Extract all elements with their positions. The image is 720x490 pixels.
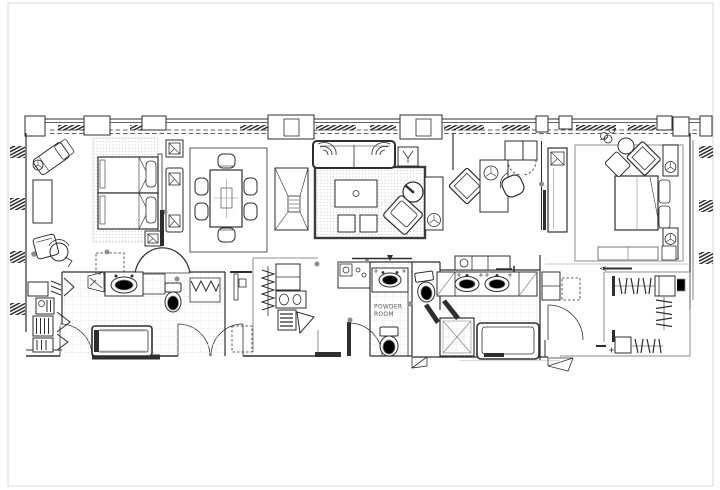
living-console	[425, 177, 443, 230]
bath-cabinet	[542, 272, 560, 300]
hanger-rod-north	[612, 276, 655, 296]
shower	[440, 318, 474, 356]
towel-stack-2	[33, 316, 53, 352]
cabinet	[28, 282, 48, 296]
bedroom2-chaise	[604, 135, 661, 177]
bathtub-west	[92, 326, 152, 356]
pillow	[659, 206, 670, 228]
corner-armchair	[31, 234, 72, 267]
open-door-wedge	[297, 312, 314, 333]
floor-plan-screenshot: POWDER ROOM	[0, 0, 720, 490]
bedroom-tv-console	[163, 168, 184, 232]
bedroom2-tv-console	[548, 148, 567, 232]
dashed-outline	[232, 326, 252, 352]
wall-segment	[543, 190, 546, 230]
nightstand-bottom	[145, 231, 161, 246]
living-area	[313, 133, 453, 238]
powder-room: POWDER ROOM	[370, 262, 413, 356]
twin-bed-1	[98, 157, 158, 193]
left-exterior-wall	[10, 133, 26, 332]
king-bed	[615, 176, 670, 230]
twin-bed-2	[98, 193, 158, 229]
toilet-powder	[380, 327, 398, 356]
ironing-board	[234, 274, 246, 300]
study-area	[449, 141, 546, 230]
dressing-door	[545, 305, 583, 357]
floor-dot	[315, 262, 320, 267]
sofa-side-table	[398, 147, 418, 166]
dressing-closet	[596, 267, 690, 357]
overhead-cabinet	[455, 256, 510, 270]
bathtub-east	[477, 323, 539, 359]
pillow	[146, 161, 156, 187]
powder-room-label-2: ROOM	[374, 311, 394, 318]
curved-vestibule-wall	[135, 248, 190, 273]
closet-shelf-box	[655, 276, 685, 296]
double-vanity	[437, 272, 537, 296]
study-closet	[505, 141, 537, 175]
east-bathroom	[437, 255, 580, 360]
plus-mark	[609, 348, 614, 353]
coffee-table	[335, 180, 377, 207]
top-window-wall	[25, 115, 712, 140]
pillow	[146, 197, 156, 223]
nightstand-top	[166, 140, 183, 157]
dining-area	[190, 148, 267, 252]
west-bedroom	[31, 138, 183, 274]
vanity-sink	[105, 272, 143, 296]
powder-vanity	[372, 268, 408, 292]
hanger-rod-south	[612, 330, 663, 353]
east-bedroom	[548, 135, 683, 261]
floor-dot	[175, 277, 180, 282]
wall-segment	[160, 210, 164, 246]
floor-plan-drawing: POWDER ROOM	[0, 0, 720, 490]
minibar-shelves	[278, 310, 296, 330]
towel-stack-1	[36, 298, 54, 314]
west-bathroom	[63, 272, 224, 356]
wc-door-leaf	[424, 304, 440, 325]
foot-of-bed-bench	[598, 246, 676, 260]
floor-dot	[105, 250, 110, 255]
dining-table	[210, 170, 242, 227]
ottoman-1	[338, 215, 355, 232]
media-cabinet	[275, 168, 308, 230]
wc-room	[412, 262, 440, 324]
entry-threshold	[315, 352, 341, 357]
sofa	[313, 141, 395, 168]
right-exterior-wall	[690, 133, 713, 310]
ottoman-2	[360, 215, 377, 232]
door-knob-dot	[539, 182, 544, 187]
luggage-rack-dashed	[562, 278, 580, 300]
door-knob-dot	[408, 302, 413, 307]
powder-room-label: POWDER	[374, 304, 402, 311]
entry-closet	[230, 262, 320, 353]
closet-cabinets	[276, 264, 306, 308]
hanger-rod-vertical	[262, 266, 274, 316]
nightstand-north	[663, 145, 678, 176]
towel-rack	[190, 278, 220, 302]
door-stop-mark-1	[412, 357, 427, 368]
page-frame	[8, 3, 713, 486]
toilet-west	[165, 283, 181, 312]
pillow	[659, 180, 670, 203]
toilet-wc	[415, 271, 437, 303]
console-table	[33, 180, 52, 223]
hanger-rod-east	[656, 297, 672, 330]
shelf-items	[51, 281, 61, 295]
door-stop-mark-2	[548, 358, 573, 371]
soffit-dashed-outline	[96, 253, 124, 274]
